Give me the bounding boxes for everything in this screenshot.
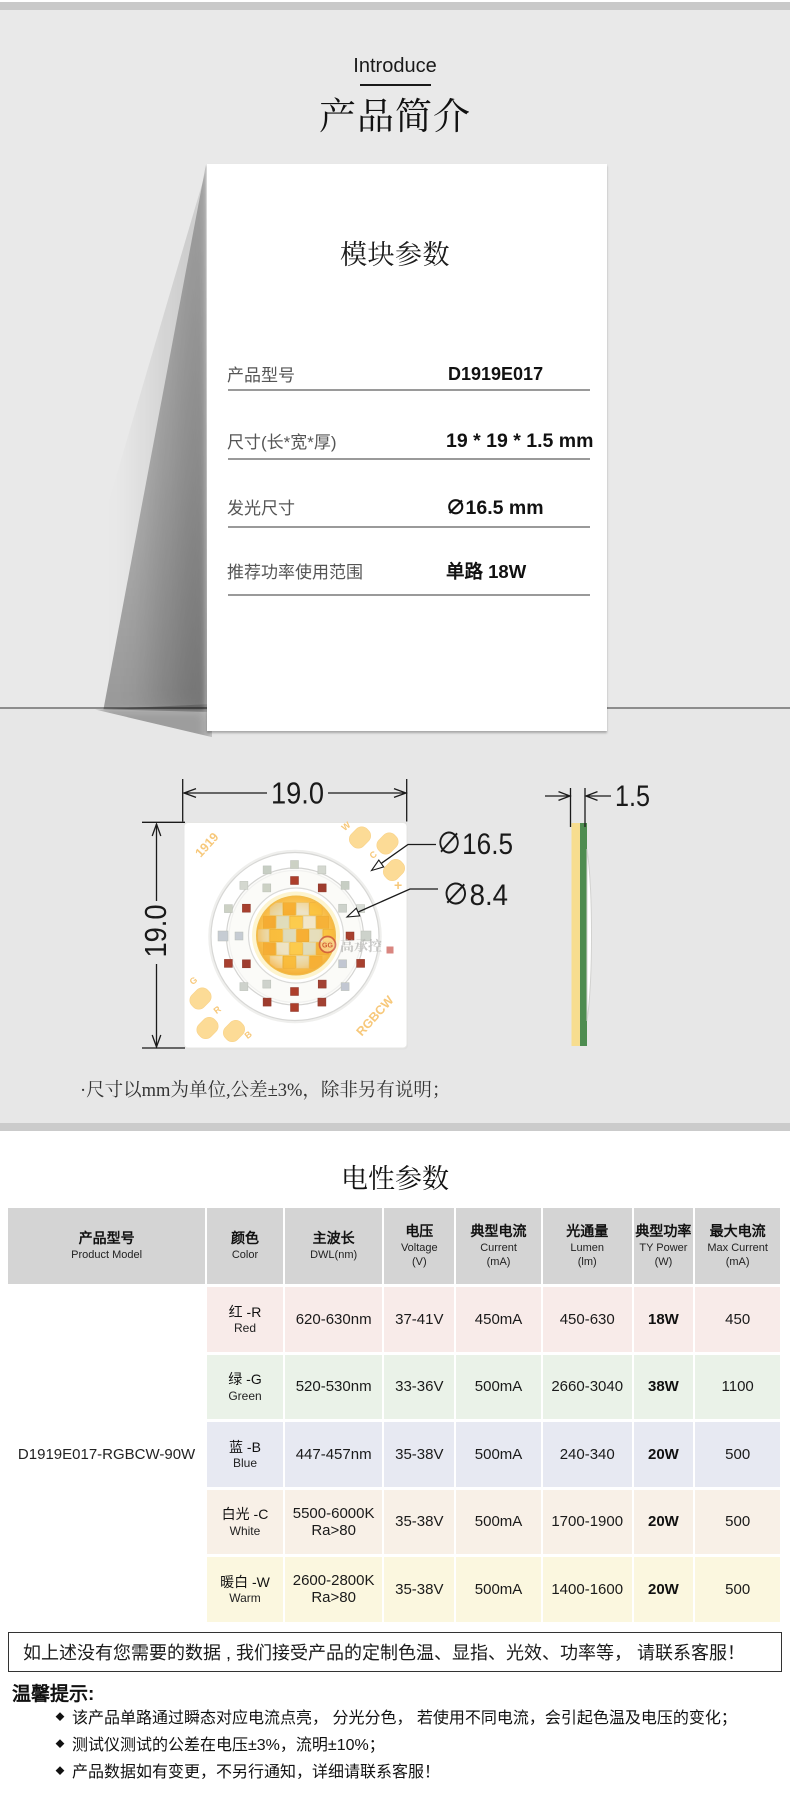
svg-text:高承控: 高承控 [340, 938, 382, 955]
svg-text:GG: GG [322, 943, 333, 950]
svg-text:∅8.4: ∅8.4 [442, 879, 508, 912]
svg-text:+: + [394, 877, 402, 893]
svg-text:∅16.5: ∅16.5 [436, 828, 513, 861]
svg-text:1.5: 1.5 [615, 780, 650, 813]
svg-text:19.0: 19.0 [271, 776, 324, 811]
svg-text:19.0: 19.0 [138, 905, 173, 958]
